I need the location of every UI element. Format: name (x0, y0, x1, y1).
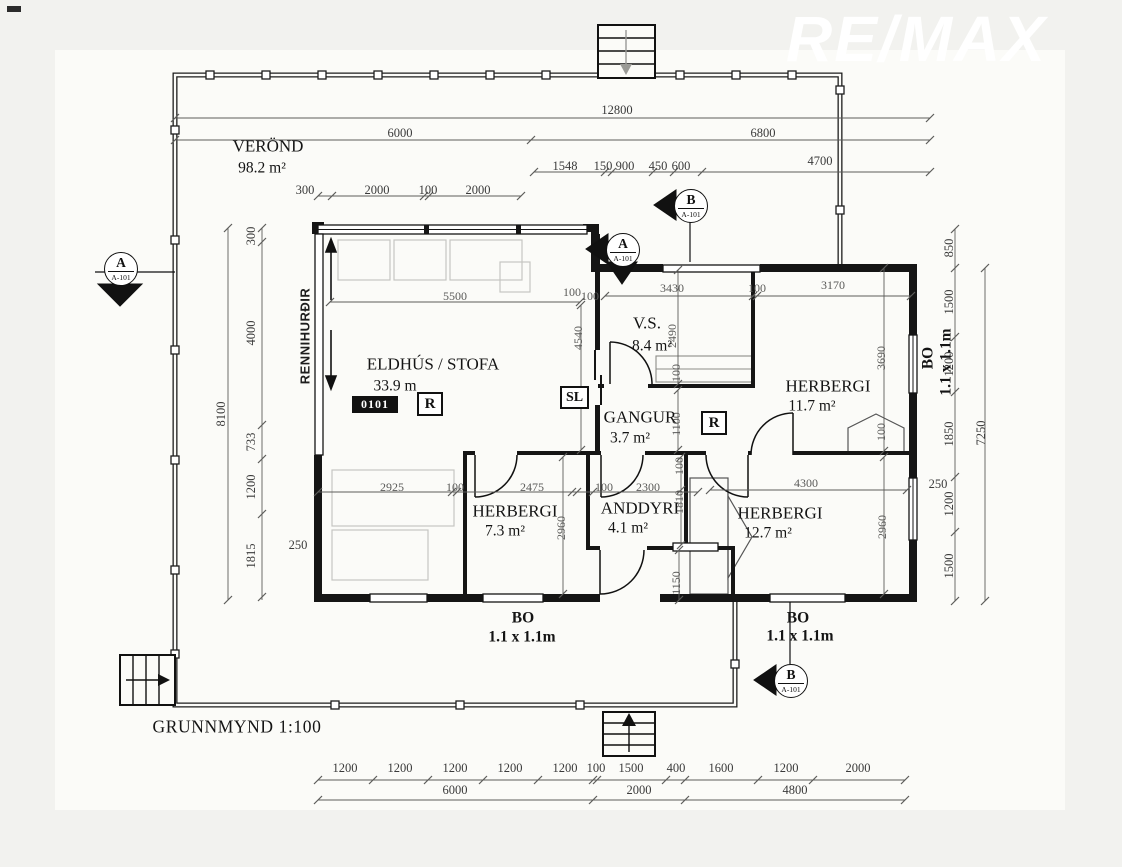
marker-sheet: A-101 (678, 208, 704, 219)
label-tags-renni: RENNIHURÐIR (299, 288, 312, 385)
label-dims-bottom-6: 1500 (619, 762, 644, 775)
label-dims-right-1: 1500 (943, 290, 956, 315)
marker-sheet: A-101 (108, 271, 134, 282)
label-rooms-herbergi1-area: 11.7 m² (788, 398, 835, 414)
label-dims-top-0: 12800 (601, 104, 632, 117)
label-rooms-gangur-name: GANGUR (604, 409, 677, 426)
label-title: GRUNNMYND 1:100 (153, 718, 322, 736)
label-dims-left-0: 300 (245, 227, 258, 246)
label-dims-right-3: 1850 (943, 422, 956, 447)
label-dims-left-3: 1200 (245, 475, 258, 500)
label-dims-right-7: 250 (929, 478, 948, 491)
label-dims-bottom-0: 1200 (333, 762, 358, 775)
label-dims-bottom-9: 1200 (774, 762, 799, 775)
marker-sheet: A-101 (610, 252, 636, 263)
label-dims-inner-21: 1150 (670, 571, 682, 595)
label-rooms-vs-area: 8.4 m² (632, 338, 672, 354)
label-dims-bottom-13: 4800 (783, 784, 808, 797)
label-rooms-herbergi2-name: HERBERGI (473, 503, 558, 520)
label-dims-bottom-7: 400 (667, 762, 686, 775)
label-rooms-herbergi3-area: 12.7 m² (744, 525, 792, 541)
sliding-door-tag: SL (560, 386, 589, 409)
label-windows-bo_right-label: BO (920, 347, 936, 369)
label-dims-bottom-12: 2000 (627, 784, 652, 797)
label-rooms-anddyri-area: 4.1 m² (608, 520, 648, 536)
label-dims-inner-4: 3170 (821, 279, 845, 291)
label-dims-inner-14: 100 (595, 481, 613, 493)
label-dims-top-11: 100 (419, 184, 438, 197)
section-marker-a-mid: A A-101 (606, 233, 640, 267)
label-dims-inner-11: 2925 (380, 481, 404, 493)
label-dims-top-6: 450 (649, 160, 668, 173)
room-number-tag: 0101 (352, 396, 398, 413)
label-dims-bottom-4: 1200 (553, 762, 578, 775)
label-rooms-herbergi1-name: HERBERGI (786, 378, 871, 395)
radiator-tag-stofa: R (417, 392, 443, 416)
label-rooms-anddyri-name: ANDDYRI (601, 500, 679, 517)
marker-letter: B (775, 667, 807, 683)
label-dims-top-3: 1548 (553, 160, 578, 173)
marker-letter: A (607, 236, 639, 252)
label-dims-inner-9: 100 (875, 423, 887, 441)
marker-letter: B (675, 192, 707, 208)
label-dims-top-7: 600 (672, 160, 691, 173)
label-rooms-gangur-area: 3.7 m² (610, 430, 650, 446)
label-dims-inner-18: 4300 (794, 477, 818, 489)
label-dims-right-4: 1200 (943, 492, 956, 517)
label-dims-left-6: 250 (289, 539, 308, 552)
label-dims-left-4: 1815 (245, 544, 258, 569)
label-dims-top-8: 4700 (808, 155, 833, 168)
label-dims-bottom-10: 2000 (846, 762, 871, 775)
label-rooms-eldhus-name: ELDHÚS / STOFA (367, 356, 500, 373)
label-dims-bottom-11: 6000 (443, 784, 468, 797)
label-dims-inner-3: 100 (748, 282, 766, 294)
label-dims-inner-2: 3430 (660, 282, 684, 294)
label-dims-top-1: 6000 (388, 127, 413, 140)
label-dims-inner-15: 2300 (636, 481, 660, 493)
label-dims-inner-16: 100 (673, 457, 685, 475)
label-dims-bottom-5: 100 (587, 762, 606, 775)
label-dims-inner-1: 100 (581, 290, 599, 302)
label-dims-inner-13: 2475 (520, 481, 544, 493)
label-windows-bo_bottom_left-label: BO (512, 610, 534, 626)
section-marker-a-left: A A-101 (104, 252, 138, 286)
label-dims-inner-22: 100 (563, 286, 581, 298)
label-dims-inner-20: 2960 (876, 515, 888, 539)
label-dims-left-2: 733 (245, 433, 258, 452)
label-dims-top-4: 150 (594, 160, 613, 173)
label-veranda-area: 98.2 m² (238, 160, 286, 176)
label-dims-right-0: 850 (943, 239, 956, 258)
label-windows-bo_bottom_left-size: 1.1 x 1.1m (488, 629, 555, 645)
section-marker-b-top: B A-101 (674, 189, 708, 223)
label-rooms-vs-name: V.S. (633, 315, 661, 332)
label-rooms-eldhus-area: 33.9 m (373, 378, 416, 394)
label-dims-inner-5: 4540 (572, 326, 584, 350)
label-rooms-herbergi2-area: 7.3 m² (485, 523, 525, 539)
label-dims-top-9: 300 (296, 184, 315, 197)
label-dims-top-12: 2000 (466, 184, 491, 197)
label-windows-bo_bottom_right-size: 1.1 x 1.1m (766, 628, 833, 644)
floor-plan: 1280060006800154815090045060047003002000… (0, 0, 1122, 867)
section-marker-b-bottom: B A-101 (774, 664, 808, 698)
radiator-tag-gangur: R (701, 411, 727, 435)
label-dims-top-10: 2000 (365, 184, 390, 197)
label-dims-bottom-1: 1200 (388, 762, 413, 775)
label-dims-inner-12: 100 (446, 481, 464, 493)
label-windows-bo_bottom_right-label: BO (787, 610, 809, 626)
marker-sheet: A-101 (778, 683, 804, 694)
label-dims-bottom-8: 1600 (709, 762, 734, 775)
label-dims-top-2: 6800 (751, 127, 776, 140)
label-rooms-herbergi3-name: HERBERGI (738, 505, 823, 522)
label-dims-right-5: 1500 (943, 554, 956, 579)
label-windows-bo_right-size: 1.1 x 1.1m (938, 328, 954, 395)
label-dims-inner-0: 5500 (443, 290, 467, 302)
label-dims-right-6: 7250 (975, 421, 988, 446)
label-dims-inner-8: 3690 (875, 346, 887, 370)
label-dims-bottom-3: 1200 (498, 762, 523, 775)
label-dims-left-5: 8100 (215, 402, 228, 427)
label-veranda-name: VERÖND (233, 138, 304, 155)
label-dims-top-5: 900 (616, 160, 635, 173)
label-dims-bottom-2: 1200 (443, 762, 468, 775)
marker-letter: A (105, 255, 137, 271)
label-dims-left-1: 4000 (245, 321, 258, 346)
label-dims-inner-7: 100 (670, 364, 682, 382)
